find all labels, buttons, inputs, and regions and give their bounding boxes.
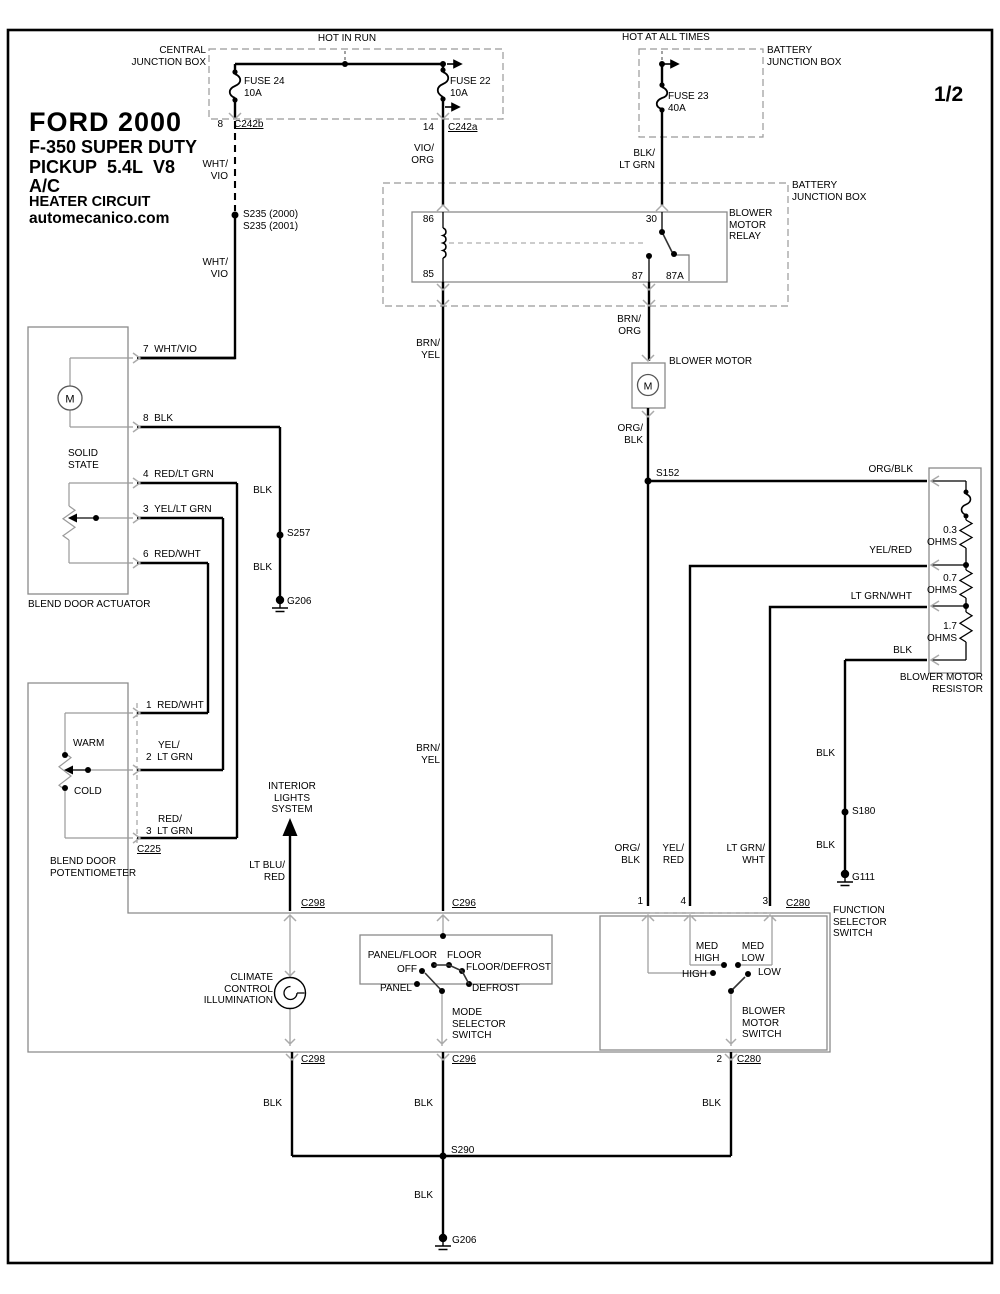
blk-s180-label-b: BLK <box>816 840 835 852</box>
connector-dashes <box>137 243 770 913</box>
lt-grn-wht-v-label: LT GRN/ WHT <box>726 843 765 866</box>
motor-symbols <box>58 375 659 411</box>
battery-junction-box-top-label: BATTERY JUNCTION BOX <box>767 45 841 68</box>
blower-med-high: MED HIGH <box>695 941 720 964</box>
lamp-icon <box>275 978 306 1009</box>
org-blk-label-1: ORG/ BLK <box>617 423 643 446</box>
pot-pin3-label: 3 LT GRN <box>146 826 193 838</box>
wht-vio-label-1: WHT/ VIO <box>202 159 228 182</box>
title-line-6: automecanico.com <box>29 210 169 227</box>
blk-c298-label: BLK <box>263 1098 282 1110</box>
wht-vio-label-2: WHT/ VIO <box>202 257 228 280</box>
title-line-5: HEATER CIRCUIT <box>29 194 150 210</box>
g206-bottom-label: G206 <box>452 1235 476 1247</box>
resistor-r2-label: 0.7 OHMS <box>927 573 957 596</box>
mode-floor: FLOOR <box>447 950 481 962</box>
org-blk-label-2: ORG/ BLK <box>614 843 640 866</box>
mode-off: OFF <box>397 964 417 976</box>
blower-switch-label: BLOWER MOTOR SWITCH <box>742 1006 785 1041</box>
brn-org-label: BRN/ ORG <box>617 314 641 337</box>
blk-s180-label-a: BLK <box>816 748 835 760</box>
actuator-pin6-wire <box>137 563 208 713</box>
title-line-2: F-350 SUPER DUTY <box>29 137 197 157</box>
climate-label: CLIMATE CONTROL ILLUMINATION <box>204 972 273 1007</box>
c280-pin2: 2 <box>716 1054 722 1066</box>
wiper-arrowheads <box>64 514 77 775</box>
g206-bottom-ground <box>435 1235 451 1250</box>
actuator-label: BLEND DOOR ACTUATOR <box>28 599 150 611</box>
central-junction-box-label: CENTRAL JUNCTION BOX <box>132 45 206 68</box>
mode-contact-chain <box>434 965 469 984</box>
actuator-pot-internals <box>69 483 133 563</box>
blower-motor-letter: M <box>644 381 653 393</box>
relay-coil-icon <box>443 228 446 258</box>
fuse22-label: FUSE 22 10A <box>450 76 491 99</box>
relay-pin87a: 87A <box>666 271 684 283</box>
actuator-pin6-label: 6 RED/WHT <box>143 549 201 561</box>
relay-lever <box>662 232 672 252</box>
resistor-r1-label: 0.3 OHMS <box>927 525 957 548</box>
blower-low: LOW <box>758 967 781 979</box>
c296-bottom-connector: C296 <box>452 1054 476 1066</box>
fuse22-icon <box>438 72 449 97</box>
mode-panel: PANEL <box>380 983 412 995</box>
c298-bottom-connector: C298 <box>301 1054 325 1066</box>
pot-pin1-label: 1 RED/WHT <box>146 700 204 712</box>
g111-label: G111 <box>852 872 875 884</box>
g206-left-ground <box>272 597 288 612</box>
s235-label: S235 (2000) S235 (2001) <box>243 209 298 232</box>
lt-grn-wht-h-label: LT GRN/WHT <box>851 591 912 603</box>
s235-splice <box>232 212 239 219</box>
fuse24-label: FUSE 24 10A <box>244 76 285 99</box>
fuse24-icon <box>230 74 241 98</box>
c225-connector: C225 <box>137 844 161 856</box>
brn-yel-label-1: BRN/ YEL <box>416 338 440 361</box>
fuse23-label: FUSE 23 40A <box>668 91 709 114</box>
g111-ground <box>837 871 853 886</box>
g206-left-label: G206 <box>287 596 311 608</box>
mode-switch-label: MODE SELECTOR SWITCH <box>452 1007 506 1042</box>
connector-chevrons <box>133 113 939 1060</box>
relay-pin87: 87 <box>632 271 643 283</box>
blk-c280-label: BLK <box>702 1098 721 1110</box>
junction-box-outlines <box>209 49 788 306</box>
potentiometer-label: BLEND DOOR POTENTIOMETER <box>50 856 136 879</box>
ground-symbols <box>272 597 853 1250</box>
function-switch-label: FUNCTION SELECTOR SWITCH <box>833 905 887 940</box>
battery-junction-box-relay-label: BATTERY JUNCTION BOX <box>792 180 866 203</box>
s257-label: S257 <box>287 528 310 540</box>
c280-top-connector: C280 <box>786 898 810 910</box>
title-line-4: A/C <box>29 176 60 196</box>
actuator-pot-element <box>63 506 75 540</box>
actuator-motor-letter: M <box>65 394 74 406</box>
actuator-pin4-label: 4 RED/LT GRN <box>143 469 214 481</box>
s152-splice <box>645 478 652 485</box>
c280-pin4: 4 <box>680 896 686 908</box>
bottom-ground-wires <box>292 1052 731 1236</box>
blk-act-label-b: BLK <box>253 562 272 574</box>
actuator-motor-internals <box>70 358 133 427</box>
s290-splice <box>440 1153 447 1160</box>
s257-splice <box>277 532 284 539</box>
c242a-connector: C242a <box>448 122 477 134</box>
actuator-pin8-label: 8 BLK <box>143 413 173 425</box>
blower-high: HIGH <box>682 969 707 981</box>
fuse23-icon <box>657 87 668 109</box>
brn-yel-label-2: BRN/ YEL <box>416 743 440 766</box>
c280-bottom-connector: C280 <box>737 1054 761 1066</box>
solid-state-label: SOLID STATE <box>68 448 99 471</box>
s152-label: S152 <box>656 468 679 480</box>
function-switch-box <box>600 916 827 1050</box>
blk-c296-label: BLK <box>414 1098 433 1110</box>
blk-act-label-a: BLK <box>253 485 272 497</box>
title-line-3: PICKUP 5.4L V8 <box>29 157 175 177</box>
mode-floor-defrost: FLOOR/DEFROST <box>466 962 551 974</box>
yel-red-h-label: YEL/RED <box>869 545 912 557</box>
interior-lights-label: INTERIOR LIGHTS SYSTEM <box>268 781 316 816</box>
blk-g206-label: BLK <box>414 1190 433 1202</box>
c280-pin1: 1 <box>637 896 643 908</box>
mode-lever <box>425 973 442 991</box>
title-line-1: FORD 2000 <box>29 108 182 136</box>
s180-splice <box>842 809 849 816</box>
pin8-c242b: 8 <box>217 119 223 131</box>
yel-red-v-label: YEL/ RED <box>662 843 684 866</box>
lt-blu-red-label: LT BLU/ RED <box>249 860 285 883</box>
mode-defrost: DEFROST <box>472 983 520 995</box>
blk-lt-grn-label: BLK/ LT GRN <box>619 148 655 171</box>
potentiometer-control-box <box>28 683 830 1052</box>
relay-pin86: 86 <box>423 214 434 226</box>
c242b-connector: C242b <box>234 119 263 131</box>
wht-vio-wire <box>137 215 235 358</box>
c280-pin3: 3 <box>762 896 768 908</box>
hot-in-run-label: HOT IN RUN <box>318 33 376 45</box>
interior-lights-arrow <box>283 818 298 836</box>
actuator-pin3-label: 3 YEL/LT GRN <box>143 504 212 516</box>
c298-top-connector: C298 <box>301 898 325 910</box>
blower-med-low: MED LOW <box>742 941 765 964</box>
relay-pin30: 30 <box>646 214 657 226</box>
pot-pin2-label: 2 LT GRN <box>146 752 193 764</box>
mode-panel-floor: PANEL/FLOOR <box>368 950 437 962</box>
actuator-pin7-label: 7 WHT/VIO <box>143 344 197 356</box>
page-indicator: 1/2 <box>934 89 963 101</box>
hot-at-all-times-label: HOT AT ALL TIMES <box>622 32 710 44</box>
resistor-element-1 <box>960 520 972 548</box>
pot-internals <box>65 713 133 838</box>
pot-pin2-color: YEL/ <box>158 740 180 752</box>
resistor-element-3 <box>960 612 972 642</box>
brn-org-wire <box>648 282 649 906</box>
pot-pin3-color: RED/ <box>158 814 182 826</box>
resistor-element-2 <box>960 570 972 598</box>
c296-top-connector: C296 <box>452 898 476 910</box>
resistor-r3-label: 1.7 OHMS <box>927 621 957 644</box>
vio-org-label: VIO/ ORG <box>411 143 434 166</box>
thermal-limiter-icon <box>962 494 971 515</box>
s180-label: S180 <box>852 806 875 818</box>
relay-pin85: 85 <box>423 269 434 281</box>
wiring-diagram: M M FORD 2000 F-350 SUPER DUTY PICKUP 5.… <box>0 0 1000 1294</box>
s290-label: S290 <box>451 1145 474 1157</box>
warm-label: WARM <box>73 738 104 750</box>
wires <box>137 64 927 1236</box>
org-blk-h-label: ORG/BLK <box>869 464 913 476</box>
fuse-symbols <box>230 72 971 515</box>
cold-label: COLD <box>74 786 102 798</box>
relay-label: BLOWER MOTOR RELAY <box>729 208 772 243</box>
pin14-c242a: 14 <box>423 122 434 134</box>
blk-resistor-label: BLK <box>893 645 912 657</box>
resistor-label: BLOWER MOTOR RESISTOR <box>900 672 983 695</box>
blower-motor-label: BLOWER MOTOR <box>669 356 752 368</box>
